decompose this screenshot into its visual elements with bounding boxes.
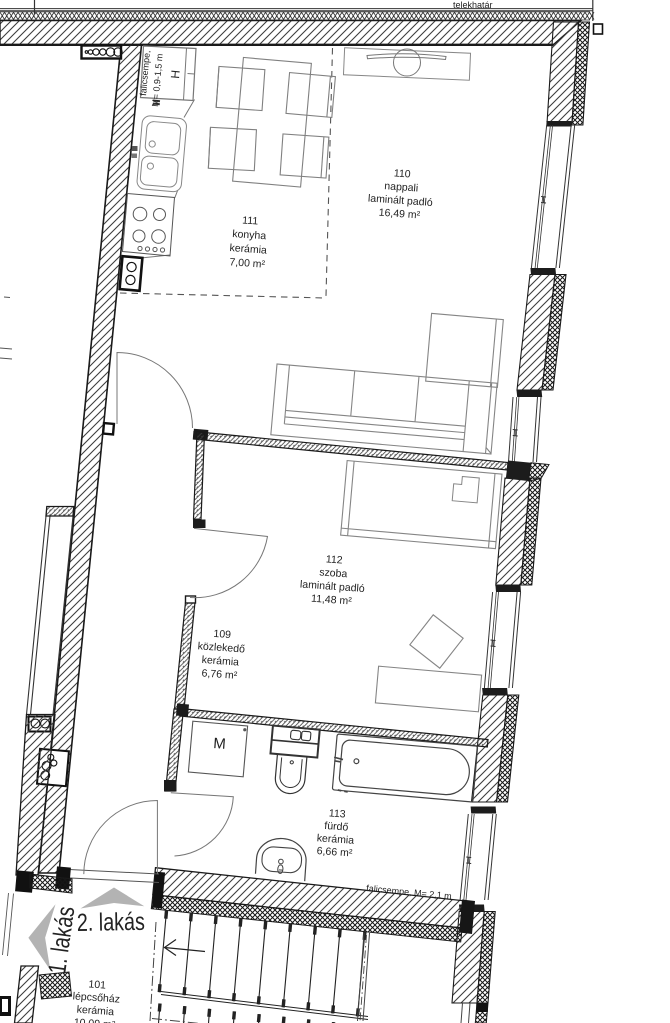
svg-text:H: H <box>168 69 183 79</box>
svg-text:6,66 m²: 6,66 m² <box>316 845 353 859</box>
svg-text:110: 110 <box>393 167 411 180</box>
svg-text:112: 112 <box>325 553 343 566</box>
svg-text:111: 111 <box>242 214 259 227</box>
svg-text:fürdő: fürdő <box>324 820 349 834</box>
svg-text:2. lakás: 2. lakás <box>77 908 145 937</box>
svg-text:konyha: konyha <box>232 228 267 242</box>
svg-text:6,76 m²: 6,76 m² <box>201 667 238 681</box>
svg-text:7,00 m²: 7,00 m² <box>229 256 266 270</box>
svg-text:M: M <box>213 735 227 753</box>
svg-text:109: 109 <box>213 628 231 641</box>
svg-text:101: 101 <box>88 978 106 991</box>
svg-text:113: 113 <box>328 807 346 820</box>
svg-text:szoba: szoba <box>319 566 348 580</box>
svg-text:nappali: nappali <box>384 180 419 194</box>
